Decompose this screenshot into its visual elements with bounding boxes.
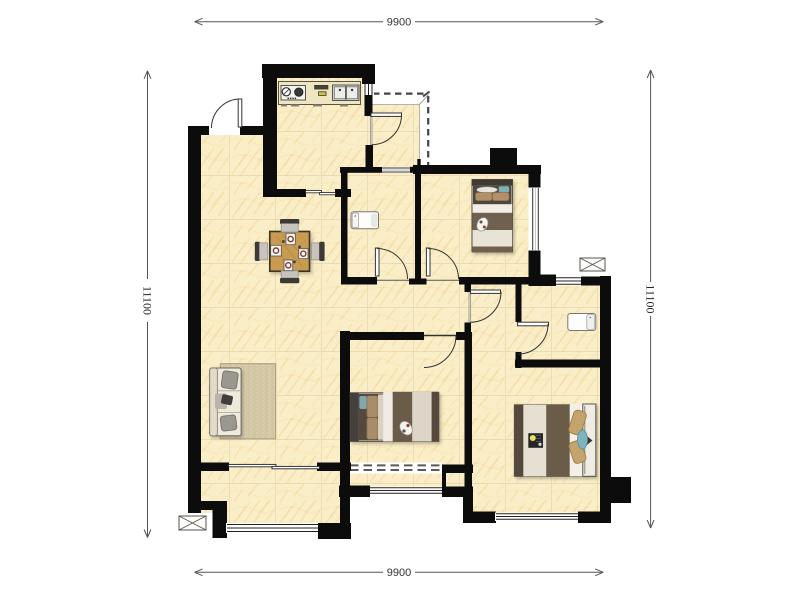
svg-text:11100: 11100: [141, 286, 155, 315]
svg-text:9900: 9900: [387, 567, 411, 579]
svg-text:9900: 9900: [387, 17, 411, 29]
svg-text:11100: 11100: [644, 284, 658, 313]
